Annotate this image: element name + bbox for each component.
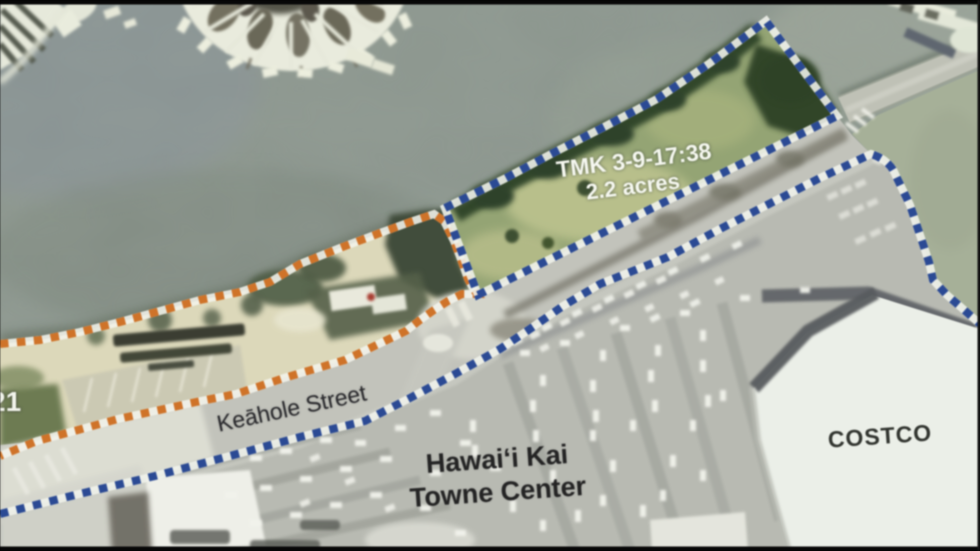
svg-text:21: 21 xyxy=(0,386,21,417)
